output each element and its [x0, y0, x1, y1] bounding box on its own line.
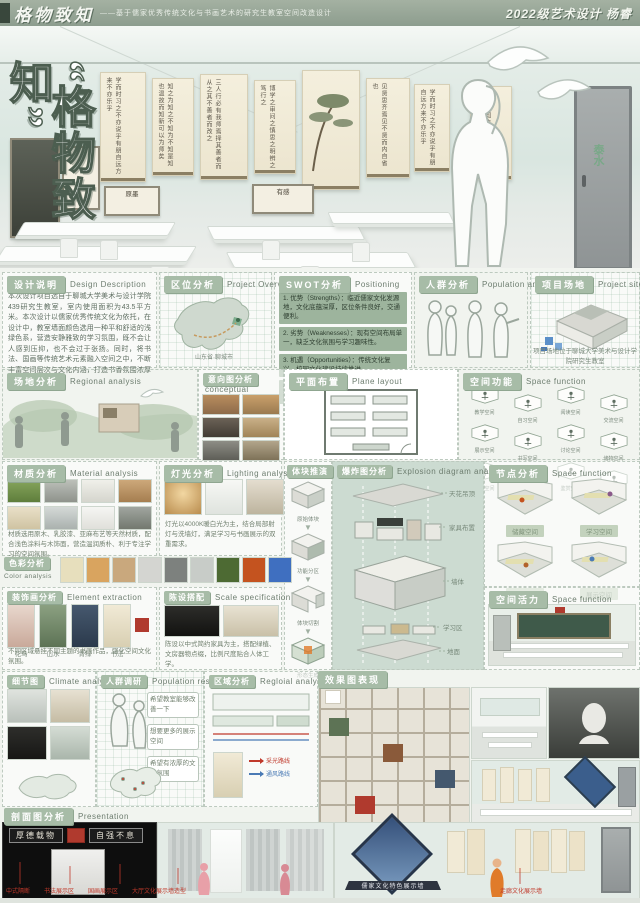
- color-swatch: [164, 557, 188, 583]
- chip-detail: 细节图: [7, 675, 44, 688]
- mood-image: [242, 417, 280, 438]
- poster-title: 格物致知: [14, 1, 94, 26]
- vitality-render: [488, 604, 636, 666]
- red-emblem: [67, 828, 85, 843]
- hex-label: 自习空间: [506, 417, 549, 424]
- hex-item: 交流空间: [592, 394, 635, 424]
- hex-label: 讨论空间: [549, 447, 592, 454]
- chip-decor: 装饰画分析: [7, 591, 62, 604]
- material-photo-concrete: [118, 506, 152, 530]
- design-poster: 格物致知 ——基于儒家优秀传统文化与书画艺术的研究生教室空间改造设计 2022级…: [0, 0, 640, 903]
- color-swatch: [190, 557, 214, 583]
- color-swatch: [86, 557, 110, 583]
- section-view-chiprow: 剖面图分析 Presentation: [4, 808, 129, 825]
- mini-door: [618, 767, 636, 807]
- floor-plan-drawing: [323, 388, 419, 456]
- material-photo-metal: [44, 506, 78, 530]
- chip-section-view: 剖面图分析: [4, 808, 73, 825]
- furnishing-photos: [164, 605, 279, 637]
- render-classroom-white: [471, 687, 547, 759]
- lighting-photo-lamp: [246, 479, 284, 515]
- color-swatch-row: [60, 557, 292, 583]
- massing-box: [290, 532, 326, 562]
- painting-flower-bird: [7, 604, 35, 648]
- scroll-text: 知之为知之不知为不知是知也温故而知新可以为师矣: [153, 79, 175, 175]
- blackboard: [517, 613, 611, 639]
- chip-node: 节点分析: [489, 465, 547, 482]
- lighting-photo-row: [164, 479, 284, 515]
- panel-material-analysis: 材质分析 Material analysis 材质选用原木、乳胶漆、亚麻布艺等天…: [2, 461, 157, 556]
- color-swatch: [60, 557, 84, 583]
- chip-en: Scale specification: [215, 593, 291, 602]
- explosion-label: 家具布置: [449, 523, 476, 532]
- massing-caption: 体块切割: [285, 619, 331, 627]
- site-axon-render: [537, 291, 633, 351]
- plaque-left-text: 厚德载物: [16, 830, 56, 841]
- legend-wind-label: 通风路线: [266, 769, 290, 778]
- massing-box: [290, 636, 326, 666]
- color-swatch: [242, 557, 266, 583]
- chip-swot: SWOT分析: [279, 276, 350, 293]
- lighting-photo-ceiling: [205, 479, 243, 515]
- hex-label: 展示空间: [463, 447, 506, 454]
- chair: [150, 266, 170, 268]
- material-photo-paint: [81, 479, 115, 503]
- chip-en: Project site: [598, 280, 640, 289]
- material-photo-stone: [44, 479, 78, 503]
- chip-en: Presentation: [78, 812, 129, 821]
- scroll-text: 见贤思齐焉见不贤而内自省也: [367, 79, 389, 177]
- plaque-right: 自强不息: [89, 828, 143, 843]
- panel-location-analysis: 区位分析 Project Overview 山东省·聊城市: [159, 272, 272, 368]
- desk-row: [488, 742, 532, 748]
- chip-en: Space function: [526, 377, 586, 386]
- chair: [300, 266, 320, 268]
- iso-room: [492, 478, 558, 516]
- swot-item: 1. 优势（Strengths）：临近儒家文化发源地，文化底蕴深厚，区位条件良好…: [279, 292, 407, 324]
- mini-scroll: [500, 767, 514, 803]
- research-figure-sketch: [101, 690, 151, 750]
- shelf-item: [329, 718, 349, 736]
- painting-blue-green: [71, 604, 99, 648]
- color-swatch: [112, 557, 136, 583]
- class-info: 2022级艺术设计 杨睿: [506, 5, 632, 22]
- chip-design-desc: 设计说明: [7, 276, 65, 293]
- people-sketches: [419, 293, 523, 363]
- chip-massing: 体块推演: [287, 465, 333, 478]
- location-note: 山东省·聊城市: [195, 353, 233, 361]
- chip-en: Space function: [552, 595, 612, 604]
- furnishing-note: 陈设以中式简约家具为主，搭配绿植、文房器物点缀，比例尺度贴合人体工学。: [165, 640, 276, 670]
- decor-note: 不同区域悬挂不同主题的书画作品，强化空间文化氛围。: [8, 647, 151, 667]
- chip-en: Plane layout: [352, 377, 402, 386]
- node-room: 学习空间: [563, 478, 635, 539]
- annotation-label: 书法展示区: [44, 886, 74, 895]
- render-bust-photo: [548, 687, 640, 759]
- calligraphy-scroll: 知之为知之不知为不知是知也温故而知新可以为师矣: [152, 78, 194, 176]
- site-context-collage: [3, 386, 197, 458]
- annotation-labels: 中式隔断 书法展示区 国画展示区 大厅文化展示墙造型: [6, 886, 186, 895]
- hex-item: 教学空间: [463, 386, 506, 424]
- painting-scroll-pine: [302, 70, 360, 190]
- panel-plan-layout: 平面布置 Plane layout: [284, 369, 458, 460]
- explosion-label: 墙体: [451, 577, 465, 586]
- classroom-door: [493, 615, 511, 651]
- painting-landscape: [39, 604, 67, 648]
- massing-caption: 原始体块: [285, 515, 331, 523]
- node-room-label: 学习空间: [580, 525, 618, 537]
- material-photo-plant: [7, 479, 41, 503]
- bubble-text: 想要更多的展示空间: [150, 727, 196, 747]
- mood-image: [202, 417, 240, 438]
- hero-render: 学而时习之不亦说乎有朋自远方来不亦乐乎 知之为知之不知为不知是知也温故而知新可以…: [0, 26, 640, 268]
- color-swatch: [268, 557, 292, 583]
- panel-swot: SWOT分析 Positioning 1. 优势（Strengths）：临近儒家…: [274, 272, 412, 368]
- chip-plan: 平面布置: [289, 373, 347, 390]
- zone-legend: 采光路线 通风路线: [249, 756, 290, 778]
- chip-en: conceptual: [205, 385, 249, 394]
- chip-en: Positioning: [355, 280, 400, 289]
- painting-calligraphy: [103, 604, 131, 648]
- shelf-item: [435, 770, 455, 788]
- hex-item: 展示空间: [463, 424, 506, 462]
- hex-label: 交流空间: [592, 417, 635, 424]
- mini-scroll: [482, 769, 496, 801]
- legend-light: 采光路线: [249, 756, 290, 765]
- pine-painting: [303, 71, 359, 189]
- node-room-label: 储藏空间: [506, 525, 544, 537]
- panel-detail: 细节图 Climate analysis: [2, 671, 96, 807]
- legend-wind: 通风路线: [249, 769, 290, 778]
- iso-room: [566, 541, 632, 579]
- chip-research: 人群调研: [101, 675, 147, 688]
- chair: [100, 240, 118, 260]
- scroll-text: 学而时习之不亦说乎有朋自远方来不亦乐乎: [101, 73, 123, 181]
- chip-en: Lighting analysis: [227, 469, 295, 478]
- calligraphy-scroll: 见贤思齐焉见不贤而内自省也: [366, 78, 410, 178]
- chair: [352, 242, 370, 262]
- color-swatch: [138, 557, 162, 583]
- mood-image: [242, 394, 280, 415]
- china-map-diagram: 山东省·聊城市: [164, 289, 267, 363]
- hex-item: 自习空间: [506, 394, 549, 424]
- mood-image: [202, 394, 240, 415]
- desk-row: [497, 643, 629, 649]
- legend-light-label: 采光路线: [266, 756, 290, 765]
- material-swatch-grid: [7, 479, 152, 530]
- panel-explosion-diagram: 爆炸图分析 Explosion diagram analysis: [332, 461, 484, 670]
- mood-image: [242, 440, 280, 461]
- bottom-strip: [0, 898, 640, 903]
- zone-scroll-photo: [213, 752, 243, 798]
- chip-zone: 区域分析: [209, 675, 255, 688]
- mini-scroll: [518, 769, 532, 801]
- furnishing-photo-dark: [164, 605, 220, 637]
- door-handle: [582, 175, 586, 187]
- iso-room: [566, 478, 632, 516]
- color-swatch: [216, 557, 240, 583]
- swot-item: 2. 劣势（Weaknesses）：现有空间布局单一，缺乏文化氛围与学习趣味性。: [279, 327, 407, 351]
- chip-regional: 场地分析: [7, 373, 65, 390]
- small-frame: 原墨: [104, 186, 160, 216]
- panel-project-site: 项目场地 Project site 项目场地位于聊城大学美术与设计学院研究生教室: [530, 272, 640, 368]
- survey-bubble-card: 想要更多的展示空间: [147, 724, 199, 750]
- panel-conceptual: 意向图分析 conceptual: [198, 369, 284, 460]
- vase-photo: [325, 690, 341, 704]
- iso-room: [492, 541, 558, 579]
- hex-item: 储物空间: [592, 432, 635, 462]
- panel-population-research: 人群调研 Population research 希望教室能够改善一下 想要更多…: [96, 671, 204, 807]
- chip-color: 色彩分析: [4, 557, 50, 570]
- scroll-text: 博学之审问之慎思之明辨之笃行之: [255, 81, 277, 173]
- chip-vitality: 空间活力: [489, 591, 547, 608]
- annotation-label: 中式隔断: [6, 886, 30, 895]
- chip-material: 材质分析: [7, 465, 65, 482]
- panel-node-analysis: 节点分析 Space function 储藏空间 学习空间 教学空间 展示空间: [484, 461, 640, 587]
- frame-label: 原墨: [106, 188, 158, 198]
- render-bookshelf: [318, 687, 470, 831]
- node-room: 储藏空间: [489, 478, 561, 539]
- panel-regional-analysis: 场地分析 Regional analysis: [2, 369, 198, 460]
- header-block-icon: [0, 3, 10, 23]
- chip-furnishing: 陈设搭配: [164, 591, 210, 604]
- panel-decor-painting: 装饰画分析 Element extraction 花鸟 山水 青绿 书法 不同区…: [2, 587, 157, 670]
- render-classroom-scrolls: [471, 760, 640, 831]
- panel-design-description: 设计说明 Design Description 本次设计项目选自于聊城大学美术与…: [2, 272, 157, 368]
- seal-stamp: [135, 618, 149, 632]
- chip-lighting: 灯光分析: [164, 465, 222, 482]
- chip-en: Design Description: [70, 280, 146, 289]
- explosion-label: 天花吊顶: [449, 489, 476, 498]
- table: [207, 226, 366, 240]
- survey-bubble-card: 希望教室能够改善一下: [147, 692, 199, 718]
- panel-zone-analysis: 区域分析 Regloial analysis 采光路线 通风路线: [204, 671, 318, 807]
- chip-explosion: 爆炸图分析: [337, 465, 392, 478]
- chip-en: Material analysis: [70, 469, 138, 478]
- calligraphy-scroll: 三人行必有我师焉择其善者而从之其不善者而改之: [200, 74, 248, 180]
- chip-site: 项目场地: [535, 276, 593, 293]
- chip-en: Element extraction: [67, 593, 142, 602]
- detail-photo: [50, 726, 90, 760]
- annotation-label-right: 走廊文化展示墙: [500, 886, 542, 895]
- panel-space-function-hex: 空间功能 Space function 教学空间 自习空间 阅读空间 交流空间 …: [458, 369, 640, 460]
- node-room-grid: 储藏空间 学习空间 教学空间 展示空间: [489, 478, 635, 602]
- hex-label: 阅读空间: [549, 409, 592, 416]
- bird-sketch: [478, 32, 598, 122]
- table: [226, 252, 417, 268]
- frame-label: 有感: [254, 186, 312, 196]
- chip-location: 区位分析: [164, 276, 222, 293]
- panel-color-analysis: 色彩分析 Color analysis: [2, 557, 280, 584]
- chip-population: 人群分析: [419, 276, 477, 293]
- detail-photo: [7, 726, 47, 760]
- poster-subtitle: ——基于儒家优秀传统文化与书画艺术的研究生教室空间改造设计: [100, 8, 332, 18]
- small-frame: 有感: [252, 184, 314, 214]
- scroll-text: 三人行必有我师焉择其善者而从之其不善者而改之: [201, 75, 223, 179]
- explosion-diagram: 天花吊顶 家具布置 墙体 学习区 地面: [333, 478, 483, 668]
- chip-en: Regional analysis: [70, 377, 141, 386]
- explosion-label: 地面: [447, 647, 461, 656]
- furnishing-photo-light: [223, 605, 279, 637]
- desk-row: [503, 652, 623, 658]
- material-photo-fabric: [81, 506, 115, 530]
- bust-sculpture: [549, 688, 639, 758]
- chip-en: Space function: [552, 469, 612, 478]
- mood-image-grid: [202, 394, 280, 461]
- calligraphy-scroll: 学而时习之不亦说乎有朋自远方来不亦乐乎: [100, 72, 146, 182]
- panel-furnishing: 陈设搭配 Scale specification 陈设以中式简约家具为主，搭配绿…: [159, 587, 282, 670]
- chip-conceptual: 意向图分析: [203, 373, 258, 386]
- material-note: 材质选用原木、乳胶漆、亚麻布艺等天然材质，配合浅色涂料与木饰面，营造温润质朴、利…: [8, 530, 151, 560]
- material-photo-linen: [7, 506, 41, 530]
- hex-item: 书写空间: [506, 432, 549, 462]
- shelf-item: [383, 744, 403, 762]
- poster-header: 格物致知 ——基于儒家优秀传统文化与书画艺术的研究生教室空间改造设计 2022级…: [0, 0, 640, 28]
- panel-population-analysis: 人群分析 Population analysis: [414, 272, 528, 368]
- detail-photo: [50, 689, 90, 723]
- desk-row: [480, 809, 632, 816]
- chip-space-function: 空间功能: [463, 373, 521, 390]
- detail-map-sketch: [9, 766, 89, 802]
- zone-diagram: [211, 690, 311, 746]
- chair: [262, 240, 280, 260]
- chip-render: 效果图表现: [318, 671, 387, 688]
- mood-image: [202, 440, 240, 461]
- detail-photo: [7, 689, 47, 723]
- annotation-label: 国画展示区: [88, 886, 118, 895]
- explosion-label: 学习区: [443, 623, 463, 632]
- hex-item: 阅读空间: [549, 386, 592, 424]
- calligraphy-scroll: 博学之审问之慎思之明辨之笃行之: [254, 80, 296, 174]
- chip-en: Color analysis: [4, 573, 52, 580]
- detail-photo-grid: [7, 689, 95, 760]
- site-caption: 项目场地位于聊城大学美术与设计学院研究生教室: [533, 345, 637, 365]
- lighting-photo-warm: [164, 479, 202, 515]
- panel-lighting-analysis: 灯光分析 Lighting analysis 灯光以4000K暖白光为主，结合局…: [159, 461, 282, 556]
- material-photo-wood: [118, 479, 152, 503]
- bubble-text: 希望教室能够改善一下: [150, 695, 196, 715]
- annotation-label: 大厅文化展示墙造型: [132, 886, 186, 895]
- plaque-right-text: 自强不息: [96, 830, 136, 841]
- panel-space-vitality: 空间活力 Space function: [484, 587, 640, 670]
- hex-item: 讨论空间: [549, 424, 592, 462]
- massing-box: [290, 584, 326, 614]
- china-map-outline: [103, 761, 167, 803]
- massing-box: [290, 480, 326, 510]
- hero-vertical-title: “格物致知”: [6, 60, 90, 268]
- wall-band: [480, 698, 540, 716]
- desk-row: [482, 732, 538, 738]
- panel-render-collage: 效果图表现: [318, 671, 638, 829]
- seal-text: 泰水: [590, 144, 606, 166]
- lighting-note: 灯光以4000K暖白光为主，结合局部射灯与洗墙灯，满足学习与书画展示的双重需求。: [165, 520, 276, 550]
- shelf-item: [355, 796, 375, 814]
- diamond-art: [564, 756, 616, 808]
- plaque-left: 厚德载物: [9, 828, 63, 843]
- mini-scroll: [536, 768, 550, 802]
- hex-label: 教学空间: [463, 409, 506, 416]
